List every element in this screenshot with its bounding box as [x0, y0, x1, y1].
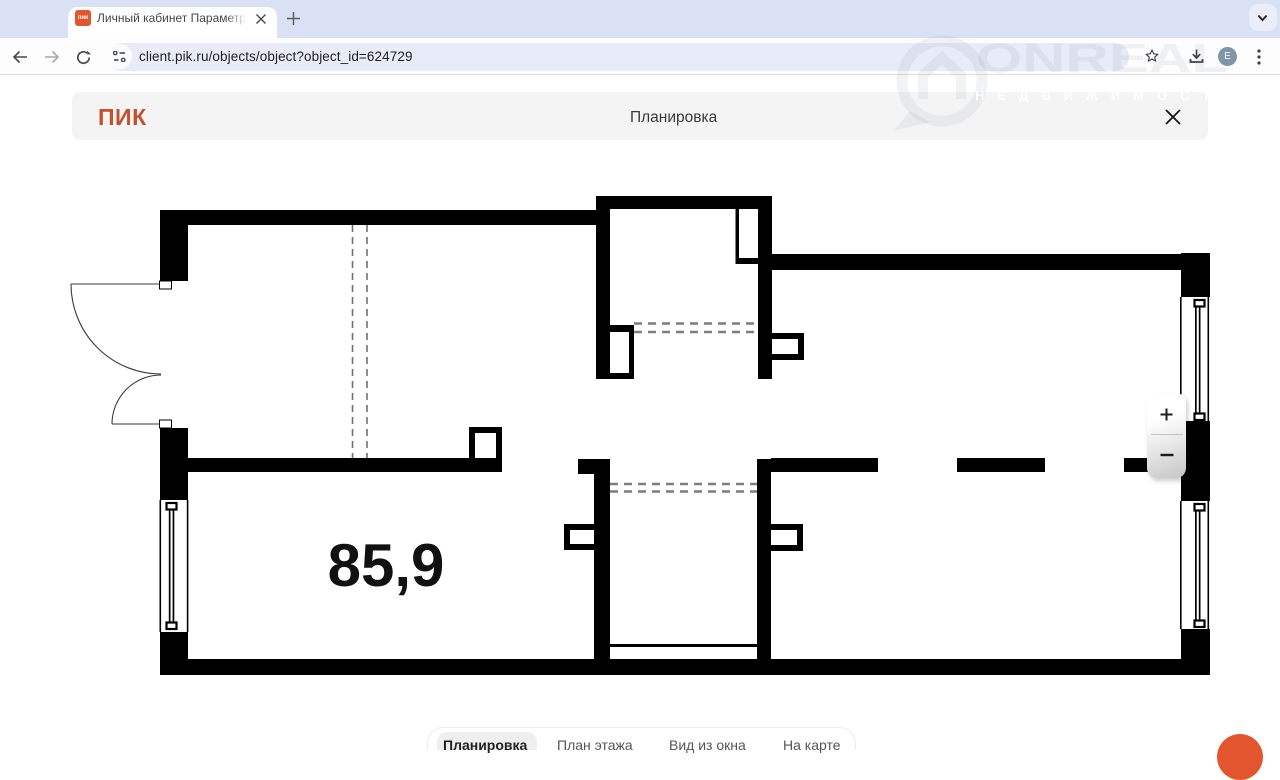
svg-text:85,9: 85,9: [328, 532, 445, 599]
